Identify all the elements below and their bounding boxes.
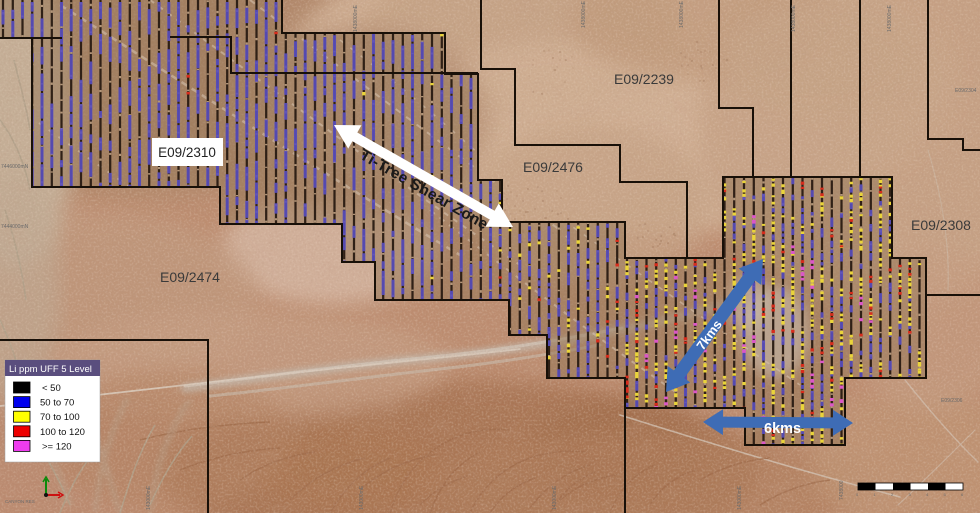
svg-text:143000mE: 143000mE — [552, 485, 558, 510]
svg-text:E09/2239: E09/2239 — [614, 71, 674, 87]
svg-text:100 to 120: 100 to 120 — [40, 427, 85, 438]
svg-text:E09/2306: E09/2306 — [941, 398, 963, 404]
svg-text:6kms: 6kms — [764, 421, 801, 437]
svg-text:7444000mN: 7444000mN — [1, 224, 29, 230]
svg-text:143000mE: 143000mE — [359, 485, 365, 510]
svg-text:70 to 100: 70 to 100 — [40, 412, 80, 423]
svg-text:143000mE: 143000mE — [146, 485, 152, 510]
svg-text:E09/2310: E09/2310 — [158, 145, 216, 160]
svg-text:E09/2476: E09/2476 — [523, 159, 583, 175]
svg-text:50 to 70: 50 to 70 — [40, 398, 74, 409]
svg-text:E09/2308: E09/2308 — [911, 217, 971, 233]
svg-text:E09/2474: E09/2474 — [160, 269, 220, 285]
svg-text:>= 120: >= 120 — [42, 441, 72, 452]
svg-text:7438000: 7438000 — [839, 480, 845, 500]
svg-text:1438000mE: 1438000mE — [791, 4, 797, 32]
svg-text:143000mE: 143000mE — [737, 485, 743, 510]
svg-text:7446000mN: 7446000mN — [1, 164, 29, 170]
svg-text:1438000mE: 1438000mE — [679, 0, 685, 28]
svg-text:1438000mE: 1438000mE — [581, 0, 587, 28]
svg-text:Li ppm UFF 5 Level: Li ppm UFF 5 Level — [9, 364, 92, 375]
svg-text:1438000mE: 1438000mE — [353, 4, 359, 32]
svg-text:CANYON RES: CANYON RES — [5, 499, 35, 504]
svg-text:1438000mE: 1438000mE — [887, 4, 893, 32]
svg-text:E09/2304: E09/2304 — [955, 88, 977, 94]
svg-text:< 50: < 50 — [42, 383, 61, 394]
